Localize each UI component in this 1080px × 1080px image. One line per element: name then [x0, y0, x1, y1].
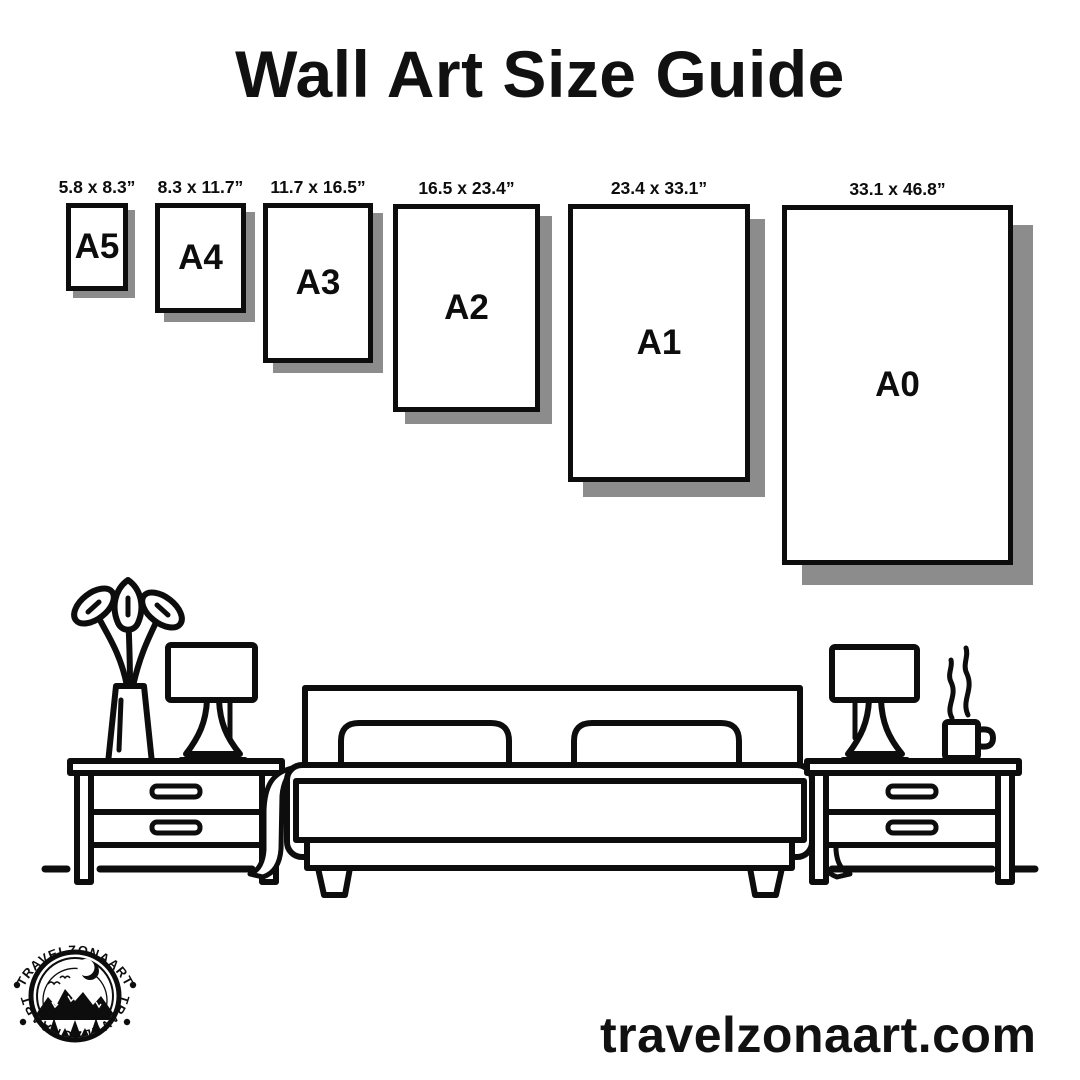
poster-a3-label: A3 [296, 263, 341, 303]
bedroom-illustration [0, 570, 1080, 900]
page-title: Wall Art Size Guide [0, 36, 1080, 112]
poster-a2-sheet: A2 [393, 204, 540, 412]
bed-icon [250, 688, 850, 895]
left-nightstand-icon [70, 761, 282, 882]
poster-a0: 33.1 x 46.8” A0 [782, 205, 1013, 565]
poster-a0-dimensions: 33.1 x 46.8” [742, 178, 1053, 200]
poster-a0-sheet: A0 [782, 205, 1013, 565]
poster-a2-label: A2 [444, 288, 489, 328]
poster-a5: 5.8 x 8.3” A5 [66, 203, 128, 291]
poster-a1-label: A1 [637, 323, 682, 363]
poster-a4: 8.3 x 11.7” A4 [155, 203, 246, 313]
poster-a0-label: A0 [875, 365, 920, 405]
poster-a4-label: A4 [178, 238, 223, 278]
poster-a4-sheet: A4 [155, 203, 246, 313]
size-guide-infographic: Wall Art Size Guide 5.8 x 8.3” A5 8.3 x … [0, 0, 1080, 1080]
poster-a5-sheet: A5 [66, 203, 128, 291]
poster-a3-sheet: A3 [263, 203, 373, 363]
brand-logo: TRAVELZONAART TRAVELZONAART [8, 926, 144, 1066]
left-lamp-icon [168, 645, 255, 760]
coffee-mug-icon [927, 648, 999, 763]
water-icon [34, 1041, 116, 1062]
poster-a1-sheet: A1 [568, 204, 750, 482]
right-lamp-icon [832, 647, 917, 760]
poster-a3: 11.7 x 16.5” A3 [263, 203, 373, 363]
poster-a1: 23.4 x 33.1” A1 [568, 204, 750, 482]
poster-a2: 16.5 x 23.4” A2 [393, 204, 540, 412]
poster-a5-label: A5 [75, 227, 120, 267]
website-url: travelzonaart.com [600, 1006, 1036, 1064]
